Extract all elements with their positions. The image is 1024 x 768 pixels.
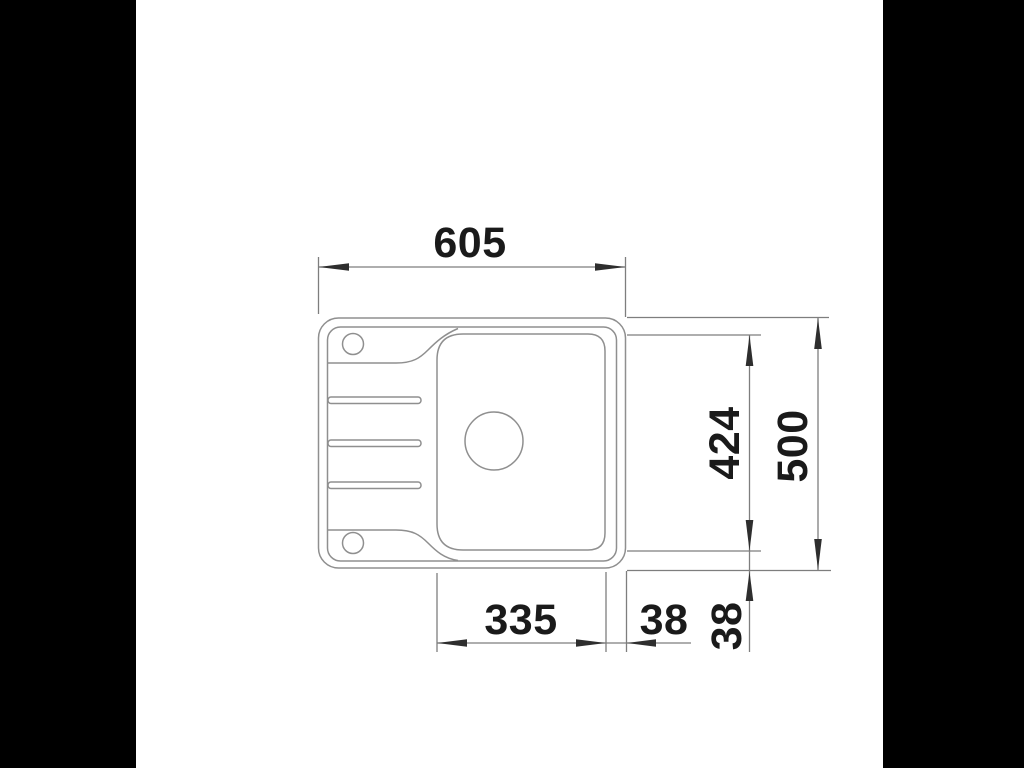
dimension-label-bowl-width: 335 [484,596,557,644]
tap-hole-bottom-circle [343,533,364,554]
dim-bowl-depth: 424 [627,335,761,551]
dim-arrow-up [746,335,754,366]
drainboard-edge-top-curve [328,329,459,364]
dim-arrow-down [814,539,822,570]
tap-hole-top-circle [343,334,364,355]
dimension-label-right-offset: 38 [640,596,689,644]
dim-arrow-up [814,318,822,349]
sink-inner-outline [328,327,617,561]
dim-arrow-left [319,263,350,271]
dim-bottom-offset: 38 [703,551,753,652]
dimension-label-bottom-offset: 38 [703,602,751,651]
dim-right-offset: 38 [606,571,691,652]
drain-hole-circle [465,412,523,470]
dim-arrow-up [746,572,754,602]
dimension-label-bowl-depth: 424 [701,406,749,479]
sink-dimension-drawing: 605 500 424 38 335 38 [0,0,1024,768]
dimension-label-overall-width: 605 [433,219,506,267]
dimension-label-overall-depth: 500 [769,409,817,482]
dim-bowl-width: 335 [437,572,606,652]
drainboard-groove [328,482,421,489]
dim-arrow-right [576,639,606,647]
drainboard-groove [328,397,421,404]
dim-arrow-left [437,639,467,647]
dim-arrow-down [746,520,754,551]
drainboard-groove [328,440,421,447]
bowl-outline [437,334,605,550]
dim-overall-width: 605 [319,219,626,317]
dim-arrow-right [595,263,626,271]
sink-body [319,318,626,568]
